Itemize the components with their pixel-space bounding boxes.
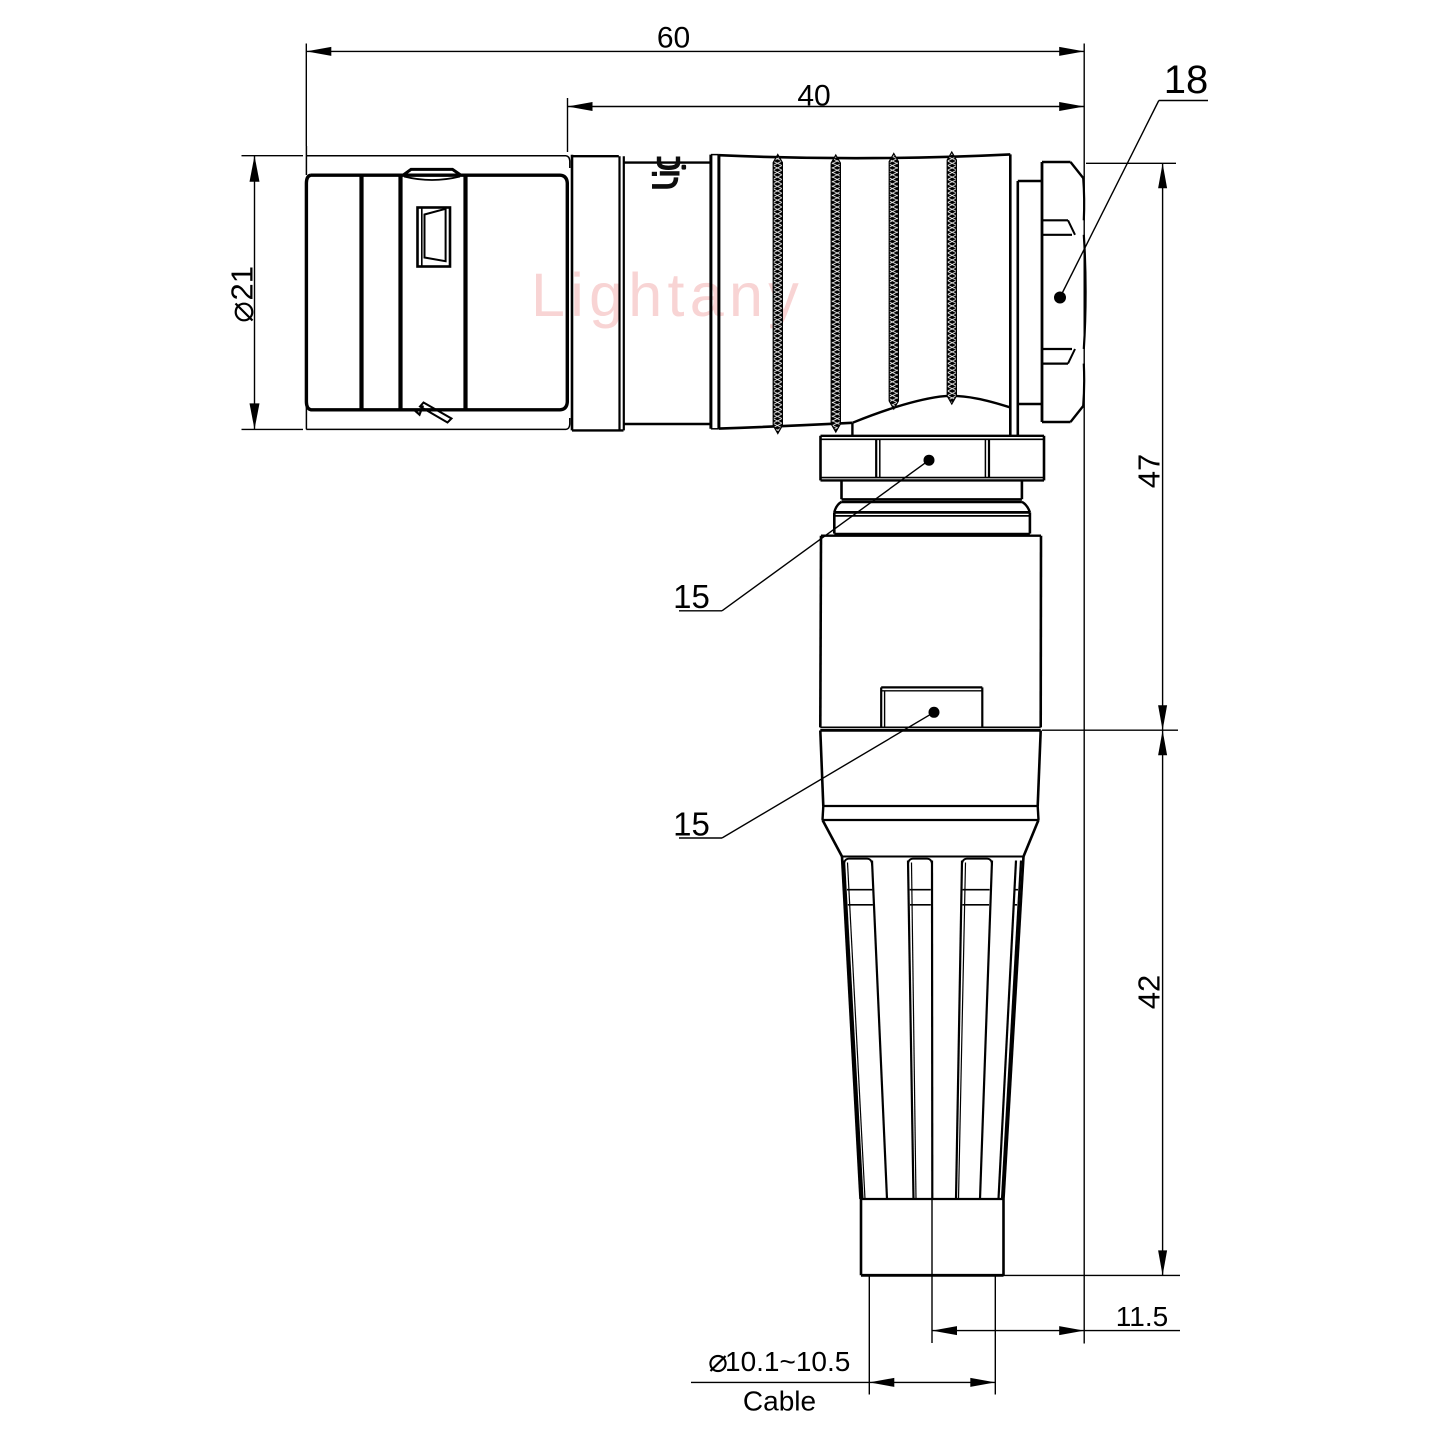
- svg-text:Cable: Cable: [743, 1386, 816, 1417]
- svg-text:10.1~10.5: 10.1~10.5: [725, 1346, 850, 1377]
- svg-text:18: 18: [1164, 58, 1209, 102]
- svg-text:11.5: 11.5: [1116, 1301, 1168, 1332]
- svg-text:47: 47: [1132, 454, 1167, 488]
- svg-text:15: 15: [673, 806, 710, 843]
- svg-text:60: 60: [657, 21, 690, 54]
- svg-text:40: 40: [797, 79, 830, 112]
- svg-text:21: 21: [225, 266, 260, 300]
- svg-text:15: 15: [673, 578, 710, 615]
- svg-text:42: 42: [1132, 975, 1167, 1009]
